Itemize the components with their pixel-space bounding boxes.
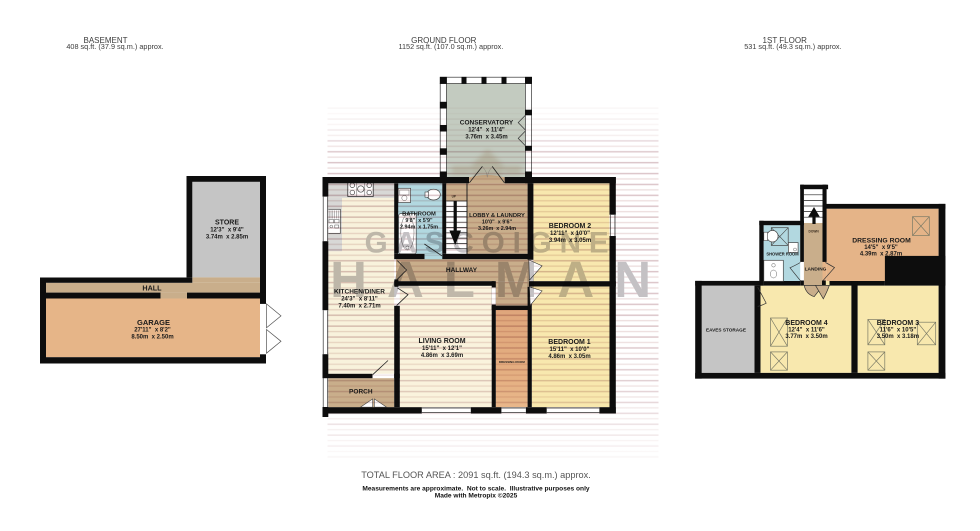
svg-text:8.50m x 2.50m: 8.50m x 2.50m (131, 335, 173, 341)
svg-text:BEDROOM 4: BEDROOM 4 (785, 320, 828, 327)
svg-text:TOTAL FLOOR AREA : 2091 sq.ft.: TOTAL FLOOR AREA : 2091 sq.ft. (194.3 sq… (361, 470, 591, 480)
svg-text:531 sq.ft. (49.3 sq.m.) approx: 531 sq.ft. (49.3 sq.m.) approx. (744, 42, 841, 51)
svg-text:STORE: STORE (215, 219, 239, 226)
svg-text:11'6" x 10'5": 11'6" x 10'5" (880, 328, 917, 334)
svg-text:GARAGE: GARAGE (137, 318, 170, 327)
svg-text:HALMAN: HALMAN (330, 251, 671, 308)
svg-text:408 sq.ft. (37.9 sq.m.) approx: 408 sq.ft. (37.9 sq.m.) approx. (66, 42, 163, 51)
svg-text:27'11" x 8'2": 27'11" x 8'2" (134, 328, 171, 334)
svg-text:Measurements are approximate.: Measurements are approximate. Not to sca… (362, 486, 590, 493)
svg-text:12'4" x 11'6": 12'4" x 11'6" (788, 328, 825, 334)
svg-text:SHOWER ROOM: SHOWER ROOM (766, 252, 799, 257)
svg-text:DRESSING ROOM: DRESSING ROOM (852, 237, 911, 244)
svg-text:BEDROOM 3: BEDROOM 3 (877, 320, 920, 327)
svg-text:3.74m x 2.85m: 3.74m x 2.85m (206, 234, 248, 240)
svg-text:HALL: HALL (142, 283, 162, 292)
svg-text:DOWN: DOWN (809, 229, 820, 233)
svg-text:12'3" x 9'4": 12'3" x 9'4" (210, 227, 244, 233)
svg-text:14'5" x 9'5": 14'5" x 9'5" (864, 245, 898, 251)
svg-text:3.77m x 3.50m: 3.77m x 3.50m (785, 334, 827, 340)
svg-text:Made with Metropix ©2025: Made with Metropix ©2025 (435, 492, 518, 500)
svg-text:1152 sq.ft. (107.0 sq.m.) appr: 1152 sq.ft. (107.0 sq.m.) approx. (398, 42, 503, 51)
svg-text:EAVES STORAGE: EAVES STORAGE (706, 328, 746, 333)
svg-text:4.39m x 2.87m: 4.39m x 2.87m (860, 251, 902, 257)
svg-text:3.50m x 3.18m: 3.50m x 3.18m (877, 334, 919, 340)
svg-text:LANDING: LANDING (805, 266, 827, 272)
